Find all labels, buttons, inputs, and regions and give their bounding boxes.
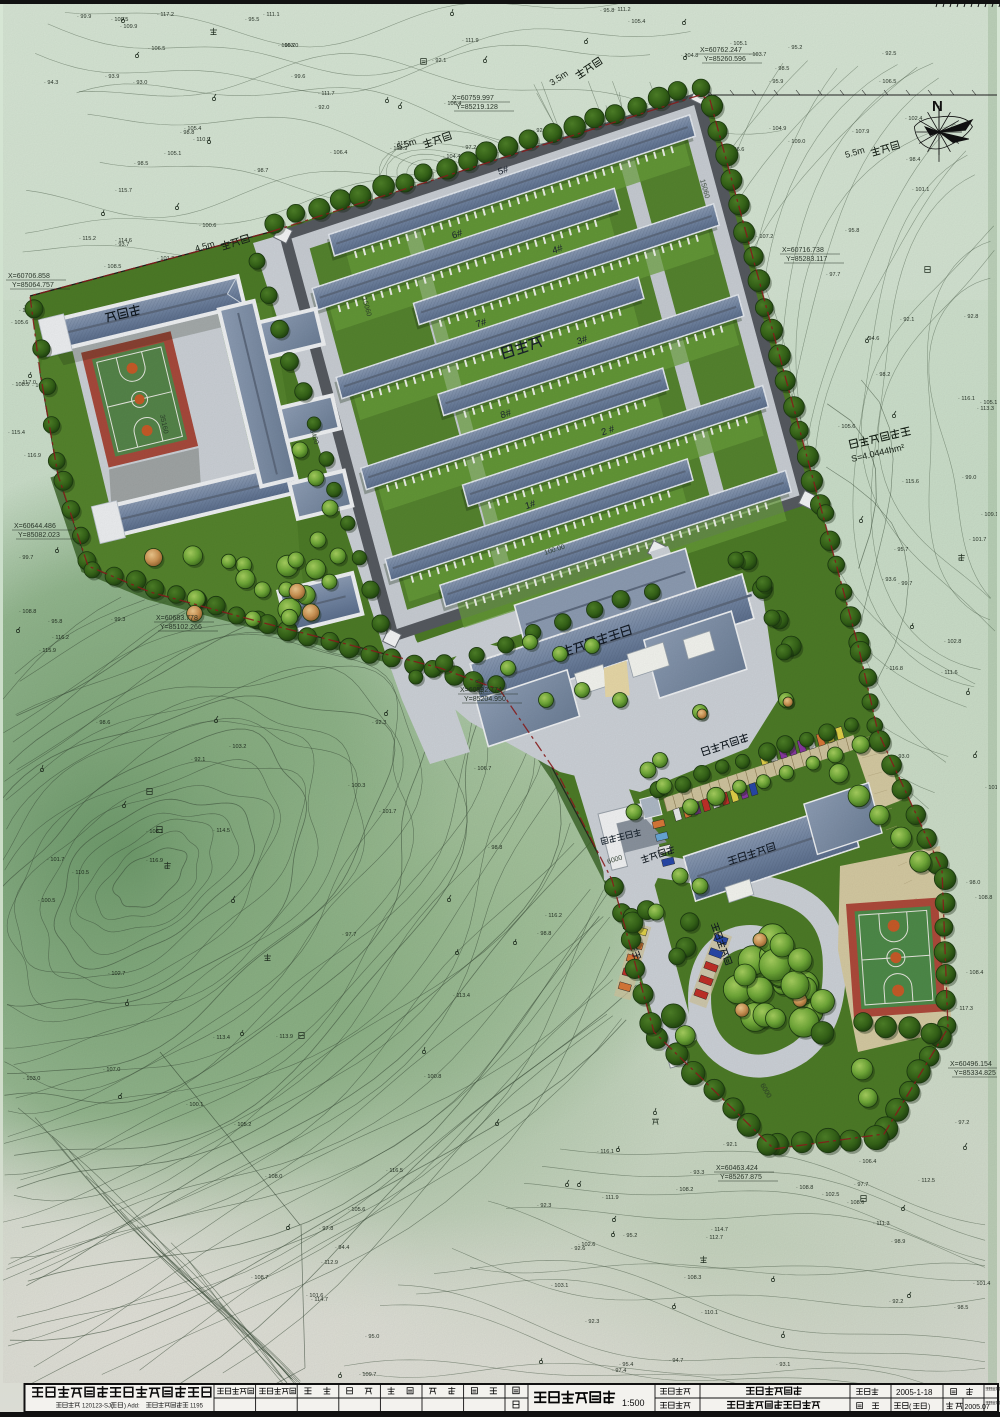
svg-text:1:500: 1:500 xyxy=(622,1398,645,1408)
svg-text:) Add:: ) Add: xyxy=(124,1404,140,1410)
svg-text:): ) xyxy=(928,1404,930,1411)
svg-text:120123-SJ(: 120123-SJ( xyxy=(82,1404,113,1410)
svg-text:1195: 1195 xyxy=(190,1404,204,1410)
svg-text:2005.07: 2005.07 xyxy=(965,1404,990,1411)
svg-text:2005-1-18: 2005-1-18 xyxy=(896,1388,933,1397)
